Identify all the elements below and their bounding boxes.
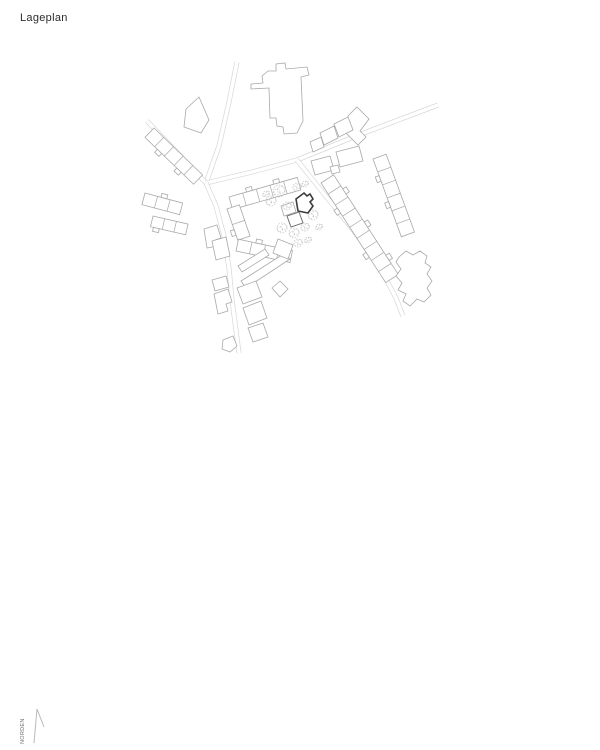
north-indicator: NORDEN	[0, 350, 60, 414]
building-large-north-t	[251, 63, 309, 134]
building-south-road-3	[248, 323, 268, 342]
row-nw-terrace	[145, 128, 203, 184]
street-north	[206, 62, 237, 183]
highlighted-building	[296, 193, 313, 213]
tree-icon	[312, 211, 318, 217]
north-arrow-icon	[30, 705, 50, 750]
row-west-terrace-b-bay	[153, 227, 160, 232]
tree-icon	[302, 181, 308, 187]
building-road-west-1	[212, 237, 230, 260]
building-south-road-2	[243, 301, 267, 325]
tree-icon	[316, 224, 322, 230]
tree-icon	[301, 226, 305, 230]
building-northwest-trapezoid	[184, 97, 209, 133]
building-ne-south-2	[336, 146, 363, 167]
building-south-road-1	[237, 281, 262, 304]
tree-icon	[308, 237, 312, 241]
tree-icon	[293, 229, 299, 235]
page: Lageplan NORDEN	[0, 0, 600, 424]
tree-icon	[305, 237, 311, 243]
building-small-diamond	[272, 281, 288, 297]
building-ne-south-1	[311, 156, 334, 175]
north-label: NORDEN	[20, 718, 26, 744]
building-road-west-3	[212, 276, 229, 291]
block-south-row-bay	[256, 239, 263, 244]
wall-strip-b	[241, 253, 290, 288]
building-ne-south-3	[330, 165, 340, 174]
tree-icon	[319, 224, 323, 228]
tree-icon	[281, 224, 287, 230]
building-east-irregular	[396, 251, 432, 306]
building-road-west-2	[214, 289, 232, 314]
site-plan	[0, 0, 600, 424]
tree-icon	[305, 181, 309, 185]
tree-icon	[294, 242, 298, 246]
